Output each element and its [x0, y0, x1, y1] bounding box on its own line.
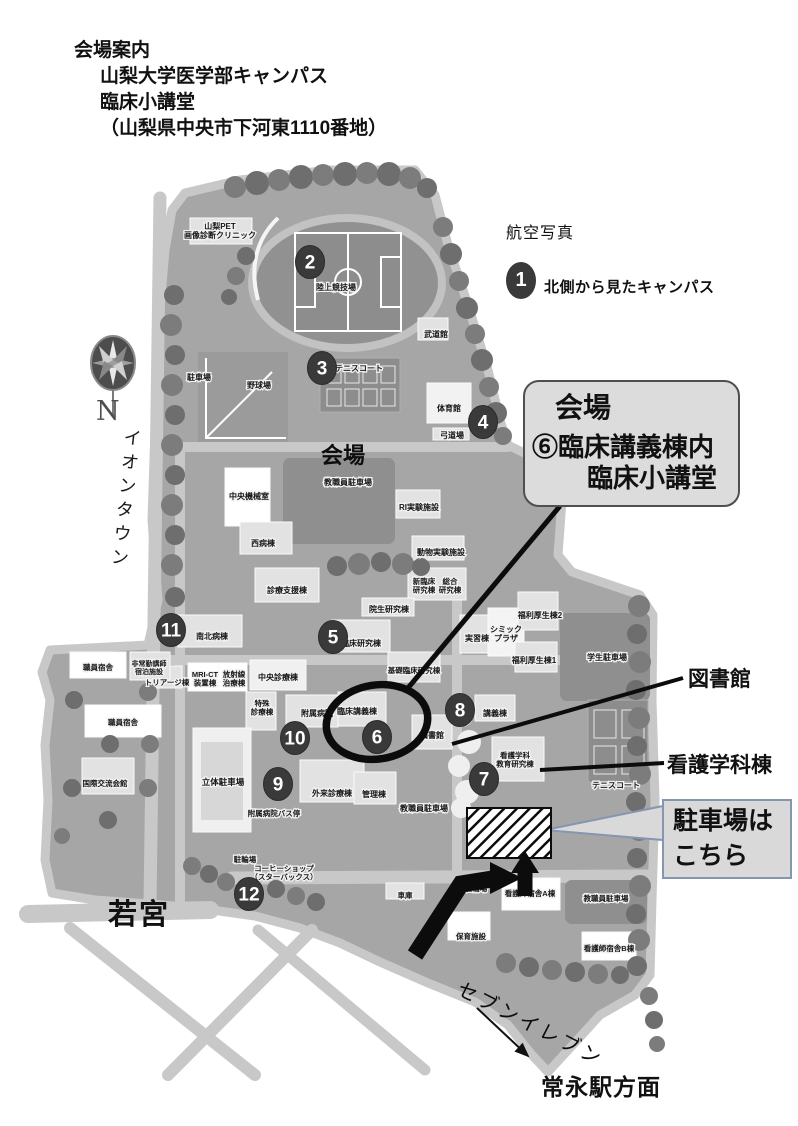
- tree: [433, 217, 453, 237]
- campus-name: 山梨大学医学部キャンパス: [100, 64, 387, 90]
- venue-callout-title: 会場: [555, 393, 738, 424]
- svg-text:10: 10: [284, 729, 305, 750]
- baseball-field: [198, 352, 288, 442]
- svg-text:2: 2: [305, 253, 316, 274]
- tree: [307, 893, 325, 911]
- tree: [161, 494, 183, 516]
- building-label: 非常勤講師宿泊施設: [132, 659, 167, 676]
- tree: [165, 405, 185, 425]
- building-label: 弓道場: [440, 430, 464, 440]
- tree: [519, 957, 539, 977]
- building-label: 保育施設: [455, 931, 486, 941]
- building-label: MRI-CT装置棟: [192, 670, 219, 688]
- map-marker-4: 4: [469, 406, 498, 439]
- parking-callout-line2: こちら: [673, 839, 790, 874]
- legend-marker-1-text: 北側から見たキャンパス: [544, 276, 715, 297]
- parking-callout-box: 駐車場は こちら: [662, 799, 792, 879]
- building-label: 中央診療棟: [258, 672, 299, 682]
- tree: [440, 243, 462, 265]
- map-title-block: 会場案内 山梨大学医学部キャンパス 臨床小講堂 （山梨県中央市下河東1110番地…: [74, 38, 387, 142]
- building-label: 野球場: [247, 380, 271, 390]
- tree: [392, 553, 414, 575]
- tree: [645, 1011, 663, 1029]
- building-label: 診療支援棟: [267, 585, 308, 595]
- building: [82, 758, 134, 794]
- building: [178, 615, 242, 647]
- parking-lot: [283, 458, 395, 544]
- svg-text:4: 4: [478, 413, 489, 434]
- building-label: 教職員駐車場: [583, 893, 629, 903]
- tree: [449, 271, 469, 291]
- building-label: 福利厚生棟2: [517, 610, 563, 620]
- tree: [101, 735, 119, 753]
- building-label: 駐輪場: [234, 854, 257, 864]
- tree: [63, 779, 81, 797]
- building-label: テニスコート: [335, 364, 383, 373]
- road: [70, 928, 255, 1075]
- building-label: 講義棟: [483, 708, 508, 718]
- building-label: 立体駐車場: [202, 777, 245, 787]
- tree: [465, 324, 485, 344]
- tree: [200, 865, 218, 883]
- tree: [312, 164, 334, 186]
- tree: [356, 162, 378, 184]
- map-marker-6: 6: [363, 721, 392, 754]
- tree: [629, 875, 651, 897]
- page-title: 会場案内: [74, 38, 387, 64]
- building-label: 附属病院バス停: [248, 808, 301, 818]
- building-label: 武道館: [424, 329, 448, 339]
- building-label: 西病棟: [251, 538, 276, 548]
- tree: [139, 779, 157, 797]
- map-marker-12: 12: [235, 878, 264, 911]
- tree: [627, 956, 647, 976]
- venue-callout-box: 会場 ⑥臨床講義棟内 臨床小講堂: [523, 380, 740, 507]
- tree: [99, 811, 117, 829]
- tree: [626, 904, 646, 924]
- tree: [165, 345, 185, 365]
- library-callout-label: 図書館: [688, 663, 751, 693]
- tree: [237, 247, 255, 265]
- tree: [161, 554, 183, 576]
- parking-hatch-area: [467, 808, 551, 858]
- building-label: 学生駐車場: [587, 652, 627, 662]
- tree: [164, 285, 184, 305]
- tree: [221, 289, 237, 305]
- building-label: シミックプラザ: [490, 624, 522, 643]
- tree: [629, 651, 651, 673]
- building-label: 駐車場: [187, 372, 211, 382]
- tree: [627, 736, 647, 756]
- campus-map-page: 山梨PET画像診断クリニック陸上競技場駐車場野球場テニスコート武道館体育館弓道場…: [0, 0, 798, 1126]
- svg-text:7: 7: [479, 770, 490, 791]
- building: [427, 383, 471, 423]
- svg-text:11: 11: [161, 621, 182, 642]
- building-label: 看護学科教育研究棟: [495, 750, 534, 769]
- map-marker-8: 8: [446, 694, 475, 727]
- building-label: 体育館: [437, 403, 461, 413]
- building-label: 車庫: [398, 890, 413, 900]
- parking-callout-line1: 駐車場は: [673, 804, 790, 839]
- map-base-layer: [28, 162, 665, 1075]
- hall-name: 臨床小講堂: [100, 90, 387, 116]
- tree: [626, 792, 646, 812]
- building-label: 実習棟: [465, 633, 490, 643]
- building-label: コーヒーショップ（スターバックス）: [250, 863, 317, 882]
- building: [255, 568, 319, 602]
- map-marker-11: 11: [157, 614, 186, 647]
- building-label: 教職員駐車場: [399, 803, 448, 813]
- building-label: 看護師宿舎B棟: [583, 943, 635, 953]
- building-label: RI実験施設: [399, 502, 440, 512]
- building-label: トリアージ棟: [145, 677, 190, 687]
- tree: [165, 587, 185, 607]
- station-direction-label: 常永駅方面: [541, 1068, 661, 1102]
- building-label: 職員宿舎: [108, 717, 138, 727]
- building-label: 基礎臨床研究棟: [387, 665, 441, 675]
- tree: [141, 735, 159, 753]
- tree: [640, 987, 658, 1005]
- white-tree: [448, 755, 470, 777]
- svg-text:8: 8: [455, 701, 466, 722]
- address: （山梨県中央市下河東1110番地）: [100, 116, 387, 142]
- svg-text:6: 6: [372, 728, 383, 749]
- tree: [611, 966, 629, 984]
- tree: [165, 525, 185, 545]
- compass-north-label: N: [96, 396, 120, 427]
- tree: [628, 595, 650, 617]
- tree: [588, 964, 608, 984]
- building-label: 国際交流会館: [83, 778, 128, 788]
- svg-text:5: 5: [328, 628, 339, 649]
- building-label: 教職員駐車場: [323, 477, 372, 487]
- tree: [224, 176, 246, 198]
- tree: [165, 465, 185, 485]
- nursing-callout-label: 看護学科棟: [667, 749, 772, 779]
- tree: [627, 848, 647, 868]
- tree: [542, 960, 562, 980]
- building-label: 新臨床研究棟: [413, 576, 436, 595]
- tree: [161, 434, 183, 456]
- tree: [456, 297, 478, 319]
- venue-callout-hall: 臨床小講堂: [587, 464, 738, 493]
- aerial-photo-label: 航空写真: [506, 219, 574, 243]
- tree: [348, 553, 370, 575]
- tree: [417, 178, 437, 198]
- tree: [245, 171, 269, 195]
- svg-text:9: 9: [273, 775, 284, 796]
- tree: [160, 314, 182, 336]
- wakamiya-label: 若宮: [108, 891, 170, 933]
- tree: [65, 691, 83, 709]
- map-marker-5: 5: [319, 621, 348, 654]
- building-label: 陸上競技場: [316, 282, 356, 292]
- tree: [227, 267, 245, 285]
- tree: [628, 707, 650, 729]
- building: [354, 772, 396, 804]
- tree: [565, 962, 585, 982]
- svg-text:12: 12: [238, 885, 259, 906]
- tree: [268, 169, 290, 191]
- tree: [161, 374, 183, 396]
- map-marker-10: 10: [281, 722, 310, 755]
- tree: [327, 556, 347, 576]
- tree: [377, 162, 401, 186]
- building-label: 院生研究棟: [369, 604, 410, 614]
- building-label: 中央機械室: [229, 491, 269, 501]
- building-label: 放射線治療棟: [222, 669, 246, 688]
- tree: [371, 552, 391, 572]
- tree: [217, 873, 235, 891]
- svg-text:3: 3: [317, 359, 328, 380]
- tree: [267, 880, 285, 898]
- tree: [494, 427, 512, 445]
- tree: [479, 377, 499, 397]
- tree: [333, 162, 357, 186]
- tree: [54, 828, 70, 844]
- tree: [412, 558, 430, 576]
- tree: [471, 349, 493, 371]
- marker-1-badge: 1: [506, 262, 536, 299]
- tree: [627, 624, 647, 644]
- building-label: 動物実験施設: [417, 547, 466, 557]
- building-label: 外来診療棟: [312, 788, 353, 798]
- tree: [496, 953, 516, 973]
- tree: [287, 887, 305, 905]
- building-label: 南北病棟: [196, 631, 229, 641]
- building-label: 福利厚生棟1: [511, 655, 557, 665]
- map-marker-2: 2: [296, 246, 325, 279]
- tree: [649, 1036, 665, 1052]
- tree: [183, 857, 201, 875]
- building: [240, 522, 292, 554]
- building-label: 職員宿舎: [83, 662, 113, 672]
- venue-area-label: 会場: [321, 443, 365, 468]
- map-marker-7: 7: [470, 763, 499, 796]
- map-marker-3: 3: [308, 352, 337, 385]
- building-label: 管理棟: [362, 789, 387, 799]
- building-label: 臨床講義棟: [337, 706, 378, 716]
- building-label: テニスコート: [592, 781, 640, 790]
- tree: [289, 165, 313, 189]
- venue-callout-building: ⑥臨床講義棟内: [532, 433, 738, 462]
- map-marker-9: 9: [264, 768, 293, 801]
